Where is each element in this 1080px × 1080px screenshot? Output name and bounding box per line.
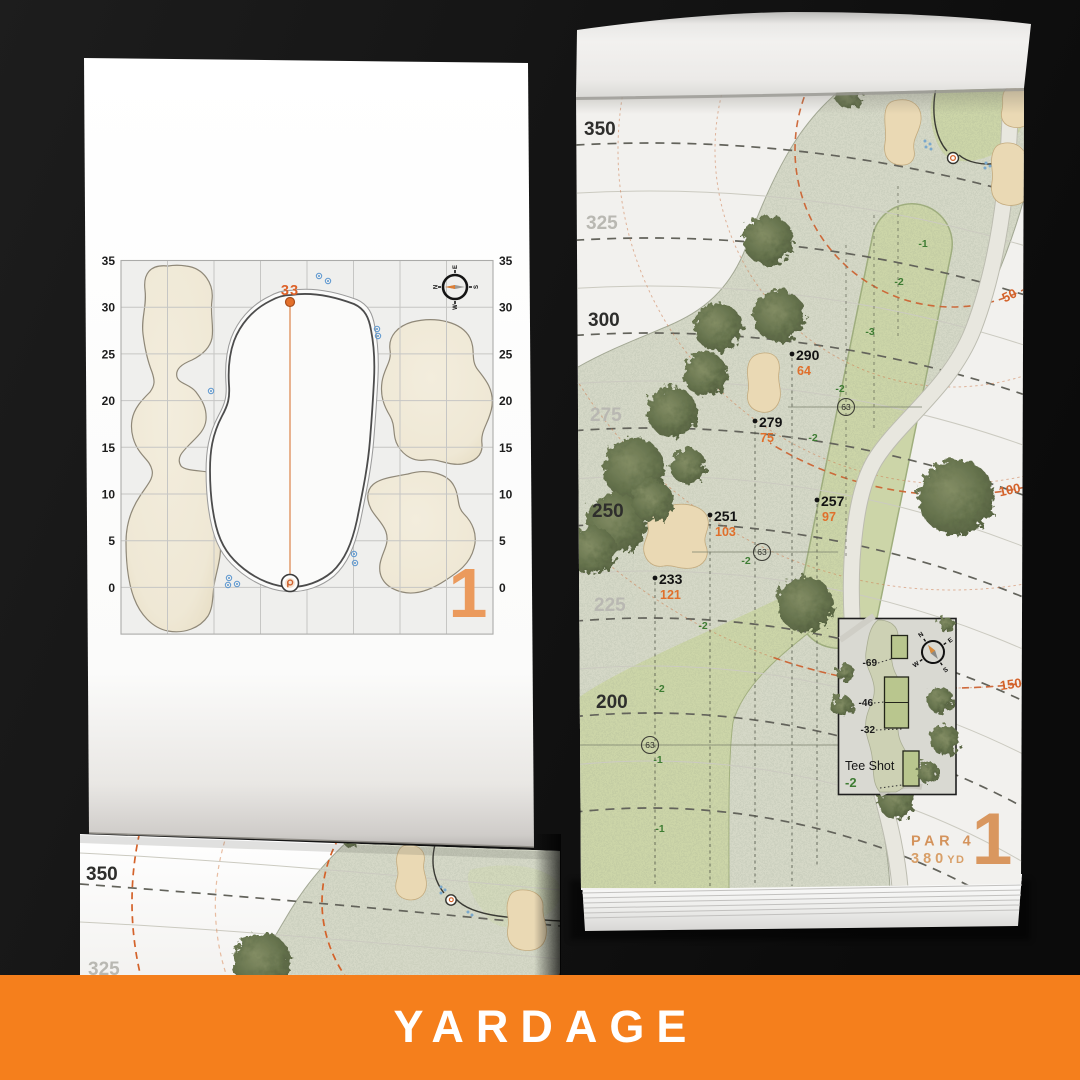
- svg-text:64: 64: [797, 364, 811, 378]
- svg-text:-2: -2: [741, 555, 750, 567]
- svg-text:20: 20: [499, 394, 513, 408]
- svg-text:1: 1: [972, 799, 1013, 880]
- svg-text:121: 121: [660, 588, 681, 602]
- svg-text:10: 10: [499, 488, 513, 502]
- svg-text:N: N: [434, 285, 440, 289]
- svg-text:63: 63: [645, 740, 655, 750]
- svg-text:-3: -3: [865, 326, 874, 338]
- svg-text:30: 30: [102, 301, 116, 315]
- svg-text:S: S: [474, 285, 480, 289]
- svg-text:279: 279: [759, 414, 783, 430]
- svg-text:275: 275: [590, 405, 622, 426]
- svg-text:-1: -1: [918, 238, 927, 250]
- svg-text:75: 75: [760, 431, 774, 445]
- svg-text:63: 63: [841, 402, 851, 412]
- svg-text:300: 300: [588, 310, 620, 331]
- svg-text:380YD: 380YD: [911, 851, 965, 867]
- svg-text:35: 35: [102, 254, 116, 268]
- svg-text:30: 30: [499, 301, 513, 315]
- svg-text:200: 200: [596, 692, 628, 713]
- svg-text:-2: -2: [835, 383, 844, 395]
- svg-text:350: 350: [584, 119, 616, 140]
- svg-text:15: 15: [102, 441, 116, 455]
- svg-text:5: 5: [499, 534, 506, 548]
- svg-text:-1: -1: [655, 823, 664, 835]
- svg-text:-2: -2: [698, 620, 707, 632]
- svg-text:YARDAGE: YARDAGE: [394, 1001, 699, 1052]
- svg-text:103: 103: [715, 525, 736, 539]
- svg-text:35: 35: [499, 254, 513, 268]
- svg-text:150: 150: [999, 675, 1023, 693]
- svg-text:290: 290: [796, 347, 820, 363]
- svg-text:251: 251: [714, 508, 738, 524]
- svg-text:W: W: [453, 304, 459, 310]
- svg-text:325: 325: [586, 213, 618, 234]
- svg-text:-2: -2: [655, 683, 664, 695]
- svg-text:20: 20: [102, 394, 116, 408]
- svg-text:15: 15: [499, 441, 513, 455]
- svg-text:25: 25: [499, 347, 513, 361]
- svg-text:PAR 4: PAR 4: [911, 834, 975, 850]
- svg-text:E: E: [453, 265, 459, 269]
- svg-text:225: 225: [594, 595, 626, 616]
- svg-text:250: 250: [592, 501, 624, 522]
- svg-text:-32: -32: [861, 725, 876, 736]
- svg-text:233: 233: [659, 571, 683, 587]
- svg-text:-1: -1: [653, 754, 662, 766]
- svg-text:0: 0: [108, 581, 115, 595]
- svg-text:257: 257: [821, 493, 845, 509]
- svg-text:25: 25: [102, 347, 116, 361]
- svg-text:10: 10: [102, 488, 116, 502]
- svg-text:5: 5: [108, 534, 115, 548]
- svg-text:1: 1: [449, 554, 488, 632]
- svg-text:-2: -2: [894, 276, 903, 288]
- svg-text:33: 33: [281, 283, 299, 299]
- svg-text:-69: -69: [863, 658, 878, 669]
- svg-text:-46: -46: [859, 698, 874, 709]
- svg-text:-2: -2: [808, 432, 817, 444]
- svg-text:0: 0: [499, 581, 506, 595]
- svg-text:-2: -2: [845, 775, 857, 790]
- svg-text:Tee Shot: Tee Shot: [845, 759, 895, 773]
- svg-text:97: 97: [822, 510, 836, 524]
- svg-text:350: 350: [86, 864, 118, 885]
- svg-text:63: 63: [757, 547, 767, 557]
